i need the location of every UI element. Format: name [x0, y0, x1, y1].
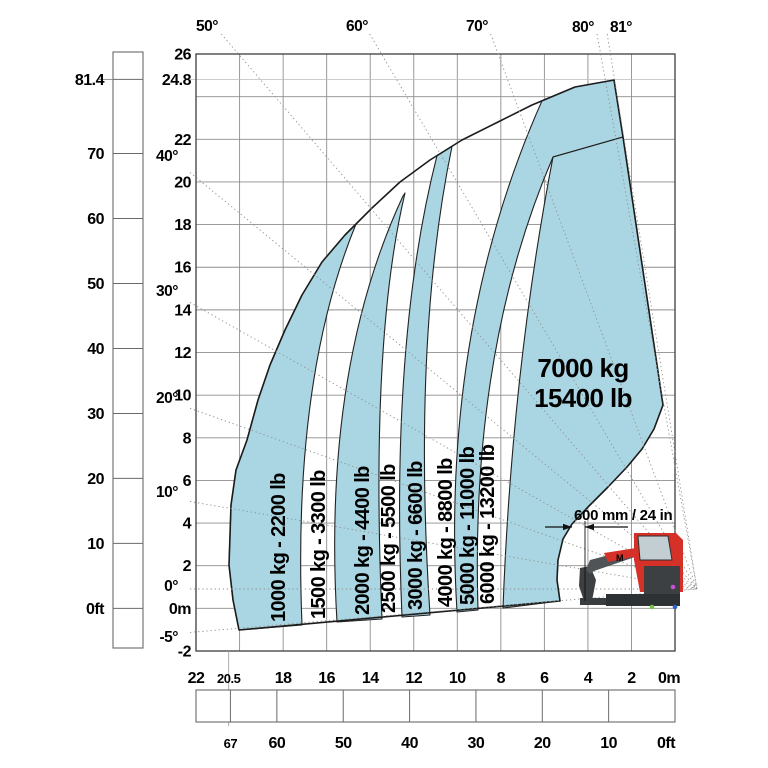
- y-axis-m-tick-label: 20: [174, 174, 191, 191]
- y-axis-m-tick-label: 16: [174, 260, 191, 277]
- x-axis-m-tick-label: 10: [449, 670, 466, 687]
- y-axis-m-tick-label: 26: [174, 47, 191, 64]
- boom-angle-label: 30°: [156, 283, 178, 300]
- machine-lower-panel: [644, 566, 680, 596]
- y-axis-m-tick-label: 6: [183, 473, 192, 490]
- x-axis-m-tick-label: 2: [627, 670, 636, 687]
- machine-ref-dot: [650, 605, 655, 610]
- x-axis-ft-tick-label: 10: [600, 735, 617, 752]
- y-axis-ft-tick-label: 81.4: [75, 72, 105, 89]
- y-axis-m-tick-label: 8: [183, 430, 192, 447]
- y-axis-ft-tick-label: 20: [87, 471, 104, 488]
- x-axis-ft-tick-label: 60: [268, 735, 285, 752]
- y-axis-m-tick-label: 14: [174, 302, 191, 319]
- x-axis-m-tick-label: 8: [497, 670, 506, 687]
- machine-ref-dot: [671, 585, 676, 590]
- y-axis-ft-tick-label: 40: [87, 341, 104, 358]
- x-axis-m-tick-label: 4: [584, 670, 593, 687]
- zone-7000-label: 15400 lb: [534, 383, 632, 413]
- y-axis-m-tick-label: 22: [174, 132, 191, 149]
- boom-angle-label: 70°: [466, 18, 488, 35]
- y-axis-ft-tick-label: 0ft: [86, 601, 105, 618]
- y-axis-m-tick-label: 4: [183, 516, 192, 533]
- boom-angle-label: 0°: [164, 578, 178, 595]
- zone-label: 1000 kg - 2200 lb: [268, 473, 290, 622]
- y-axis-ft-tick-label: 60: [87, 211, 104, 228]
- reach-ft-ruler: [196, 690, 675, 722]
- zone-label: 6000 kg - 13200 lb: [477, 444, 499, 604]
- zone-7000-label: 7000 kg: [537, 353, 628, 383]
- x-axis-ft-tick-label: 67: [224, 736, 238, 751]
- x-axis-m-tick-label: 18: [275, 670, 292, 687]
- y-axis-ft-tick-label: 50: [87, 276, 104, 293]
- load-capacity-chart: M600 mm / 24 in2624.82220181614121086420…: [0, 0, 768, 768]
- boom-angle-label: -5°: [160, 629, 179, 646]
- load-chart-svg: M600 mm / 24 in2624.82220181614121086420…: [0, 0, 768, 768]
- boom-angle-label: 20°: [156, 390, 178, 407]
- y-axis-m-tick-label: 0m: [169, 601, 191, 618]
- y-axis-ft-tick-label: 30: [87, 406, 104, 423]
- y-axis-ft-tick-label: 10: [87, 536, 104, 553]
- x-axis-ft-tick-label: 40: [401, 735, 418, 752]
- x-axis-m-tick-label: 6: [540, 670, 549, 687]
- x-axis-ft-tick-label: 0ft: [657, 735, 676, 752]
- x-axis-ft-tick-label: 50: [335, 735, 352, 752]
- y-axis-m-tick-label: 18: [174, 217, 191, 234]
- zone-label: 5000 kg - 11000 lb: [457, 446, 479, 605]
- x-axis-ft-tick-label: 20: [534, 735, 551, 752]
- x-axis-m-tick-label: 14: [362, 670, 379, 687]
- zone-label: 2000 kg - 4400 lb: [352, 466, 374, 615]
- zone-label: 4000 kg - 8800 lb: [435, 458, 457, 607]
- zone-label: 3000 kg - 6600 lb: [405, 461, 427, 610]
- x-axis-m-tick-label: 20.5: [217, 671, 241, 686]
- machine-chassis: [606, 594, 680, 606]
- y-axis-m-tick-label: 2: [183, 558, 192, 575]
- x-axis-ft-tick-label: 30: [468, 735, 485, 752]
- x-axis-m-tick-label: 12: [405, 670, 422, 687]
- x-axis-m-tick-label: 0m: [658, 670, 680, 687]
- boom-angle-label: 81°: [610, 19, 632, 36]
- boom-angle-label: 40°: [156, 148, 178, 165]
- zone-label: 1500 kg - 3300 lb: [308, 470, 330, 619]
- boom-angle-label: 60°: [346, 18, 368, 35]
- height-ft-ruler: [113, 52, 143, 648]
- y-axis-m-tick-label: 12: [174, 345, 191, 362]
- boom-angle-label: 80°: [572, 19, 594, 36]
- y-axis-m-tick-label: -2: [178, 644, 192, 661]
- y-axis-m-tick-label: 24.8: [162, 72, 192, 89]
- x-axis-m-tick-label: 22: [188, 670, 205, 687]
- dimension-arrow-left: [585, 524, 594, 530]
- zone-label: 2500 kg - 5500 lb: [378, 464, 400, 613]
- boom-angle-label: 10°: [156, 484, 178, 501]
- machine-logo: M: [616, 553, 624, 563]
- machine-ref-dot: [673, 605, 678, 610]
- machine-cab: [638, 536, 672, 560]
- y-axis-ft-tick-label: 70: [87, 146, 104, 163]
- dimension-label: 600 mm / 24 in: [574, 507, 672, 524]
- x-axis-m-tick-label: 16: [318, 670, 335, 687]
- boom-angle-label: 50°: [196, 18, 218, 35]
